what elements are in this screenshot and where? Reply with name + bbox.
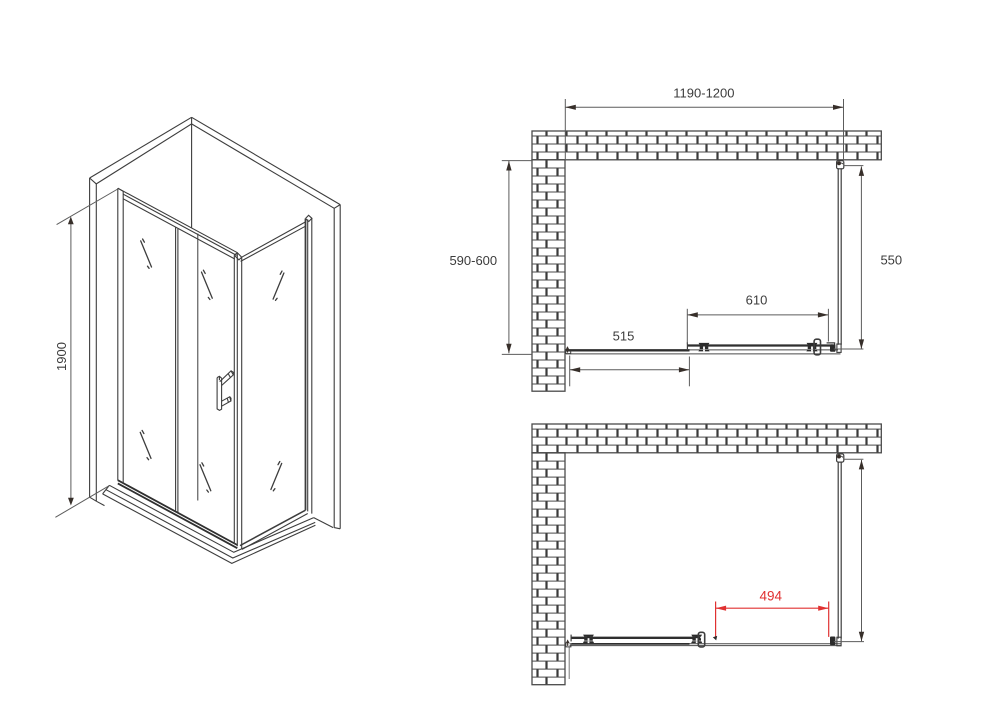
svg-text:515: 515	[613, 328, 635, 343]
svg-text:590-600: 590-600	[449, 253, 497, 268]
svg-text:494: 494	[760, 589, 783, 604]
svg-text:610: 610	[746, 293, 768, 308]
svg-text:1900: 1900	[54, 342, 69, 371]
svg-text:1190-1200: 1190-1200	[673, 86, 734, 101]
svg-text:550: 550	[880, 253, 902, 268]
